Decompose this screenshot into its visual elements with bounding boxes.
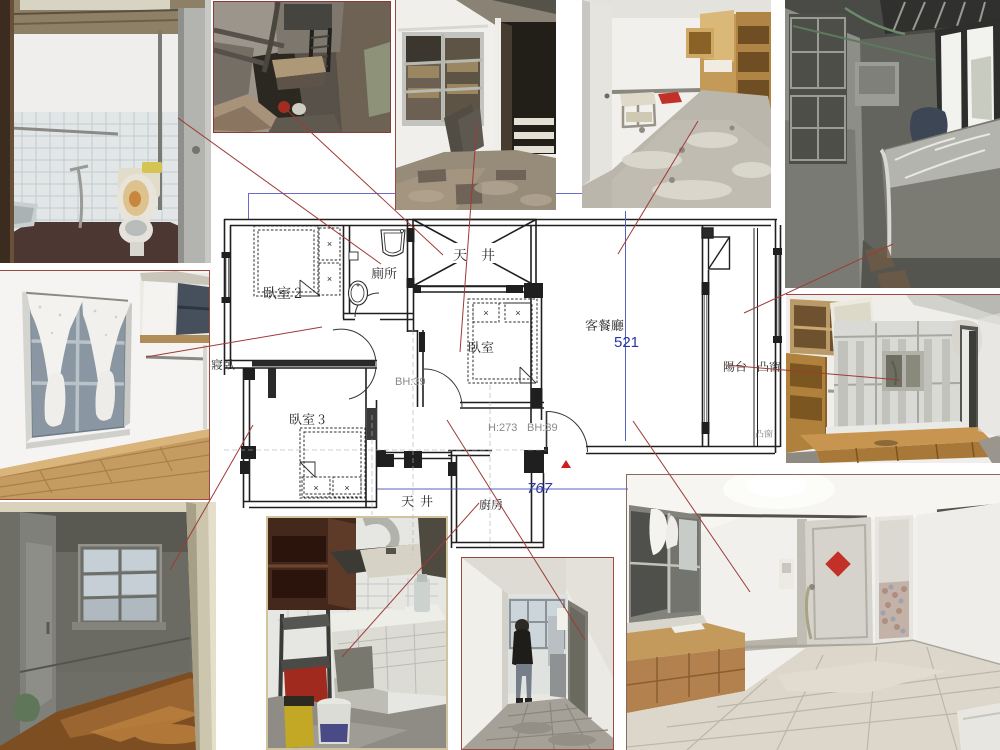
svg-text:×: × [327, 274, 332, 284]
svg-text:×: × [515, 308, 520, 318]
svg-text:521: 521 [614, 334, 639, 351]
svg-text:BH:39: BH:39 [527, 422, 558, 434]
svg-text:767: 767 [527, 480, 553, 497]
svg-text:×: × [327, 239, 332, 249]
svg-text:×: × [483, 308, 488, 318]
svg-text:×: × [313, 483, 318, 493]
svg-text:×: × [344, 483, 349, 493]
svg-text:H:273: H:273 [488, 422, 517, 434]
svg-text:BH:39: BH:39 [395, 376, 426, 388]
